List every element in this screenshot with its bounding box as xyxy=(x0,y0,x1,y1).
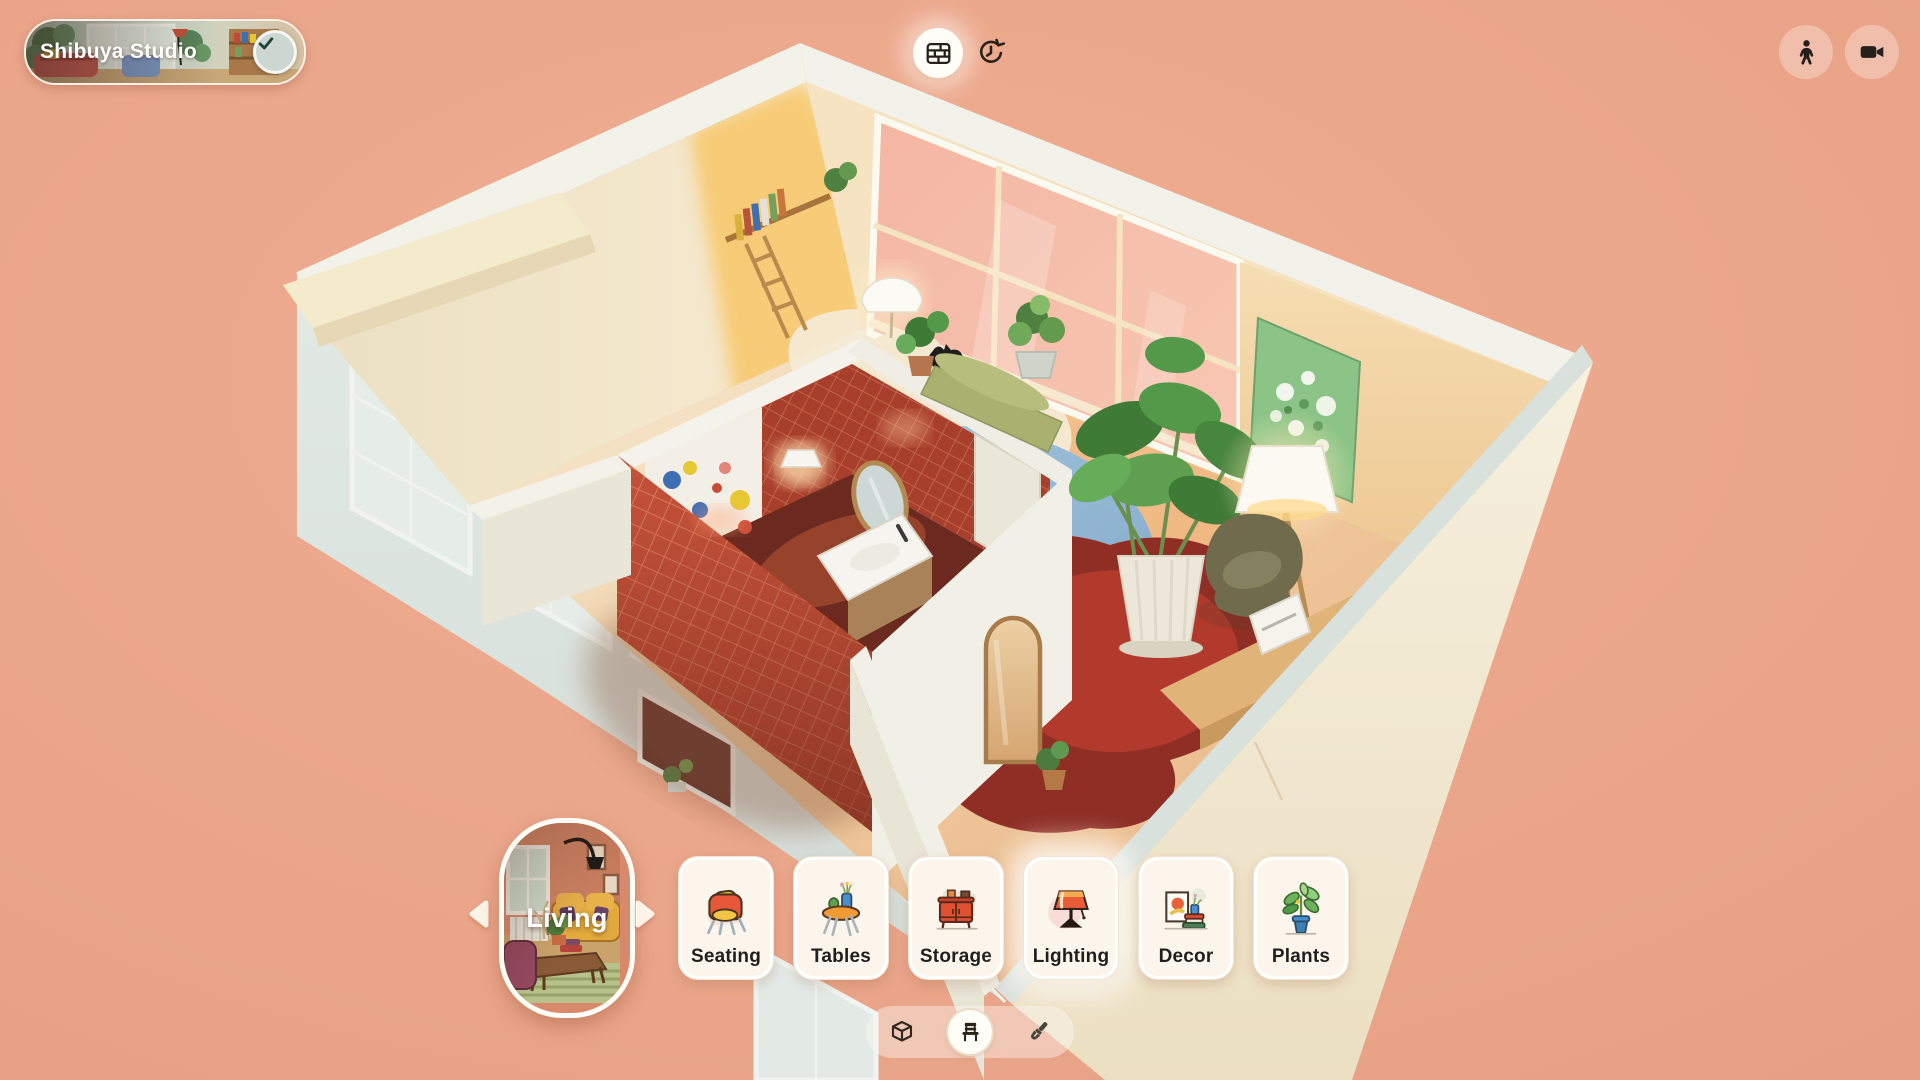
table-lamp-icon xyxy=(1040,874,1102,946)
potted-plant-icon xyxy=(1270,874,1332,946)
sideboard-icon xyxy=(925,874,987,946)
round-table-icon xyxy=(810,874,872,946)
walk-mode-button[interactable] xyxy=(1779,25,1833,79)
armchair-icon xyxy=(695,874,757,946)
chevron-right-icon xyxy=(632,899,658,929)
category-card-seating[interactable]: Seating xyxy=(678,856,774,980)
category-label: Seating xyxy=(691,946,761,968)
paintbrush-icon xyxy=(1025,1019,1051,1045)
mode-toolbar xyxy=(866,1006,1074,1058)
camera-button[interactable] xyxy=(1845,25,1899,79)
frame-and-books-icon xyxy=(1155,874,1217,946)
arch-mirror[interactable] xyxy=(986,618,1040,762)
category-label: Storage xyxy=(920,946,992,968)
category-prev-arrow[interactable] xyxy=(462,896,496,932)
category-card-tables[interactable]: Tables xyxy=(793,856,889,980)
project-check-badge[interactable] xyxy=(253,30,297,74)
chevron-left-icon xyxy=(466,899,492,929)
category-label: Lighting xyxy=(1033,946,1110,968)
mode-paint-button[interactable] xyxy=(1016,1010,1060,1054)
category-card-lighting[interactable]: Lighting xyxy=(1023,856,1119,980)
category-label: Decor xyxy=(1159,946,1214,968)
category-card-decor[interactable]: Decor xyxy=(1138,856,1234,980)
project-name: Shibuya Studio xyxy=(40,21,197,83)
category-card-plants[interactable]: Plants xyxy=(1253,856,1349,980)
category-selected-living[interactable]: Living xyxy=(499,818,635,1018)
category-card-storage[interactable]: Storage xyxy=(908,856,1004,980)
build-mode-button[interactable] xyxy=(913,28,963,78)
mode-furniture-button[interactable] xyxy=(948,1010,992,1054)
project-pill[interactable]: Shibuya Studio xyxy=(24,19,306,85)
history-button[interactable] xyxy=(968,30,1014,76)
video-camera-icon xyxy=(1858,38,1886,66)
mode-structure-button[interactable] xyxy=(880,1010,924,1054)
bathroom-wall-lamp[interactable] xyxy=(778,444,822,488)
brick-wall-icon xyxy=(925,40,952,67)
check-icon xyxy=(256,33,276,53)
selected-category-label: Living xyxy=(504,823,630,1013)
category-next-arrow[interactable] xyxy=(628,896,662,932)
category-label: Tables xyxy=(811,946,871,968)
person-walk-icon xyxy=(1793,39,1820,66)
history-clock-icon xyxy=(976,38,1006,68)
category-label: Plants xyxy=(1272,946,1330,968)
app-window: Shibuya Studio xyxy=(0,0,1920,1080)
chair-icon xyxy=(958,1020,983,1045)
cube-3d-icon xyxy=(889,1019,915,1045)
